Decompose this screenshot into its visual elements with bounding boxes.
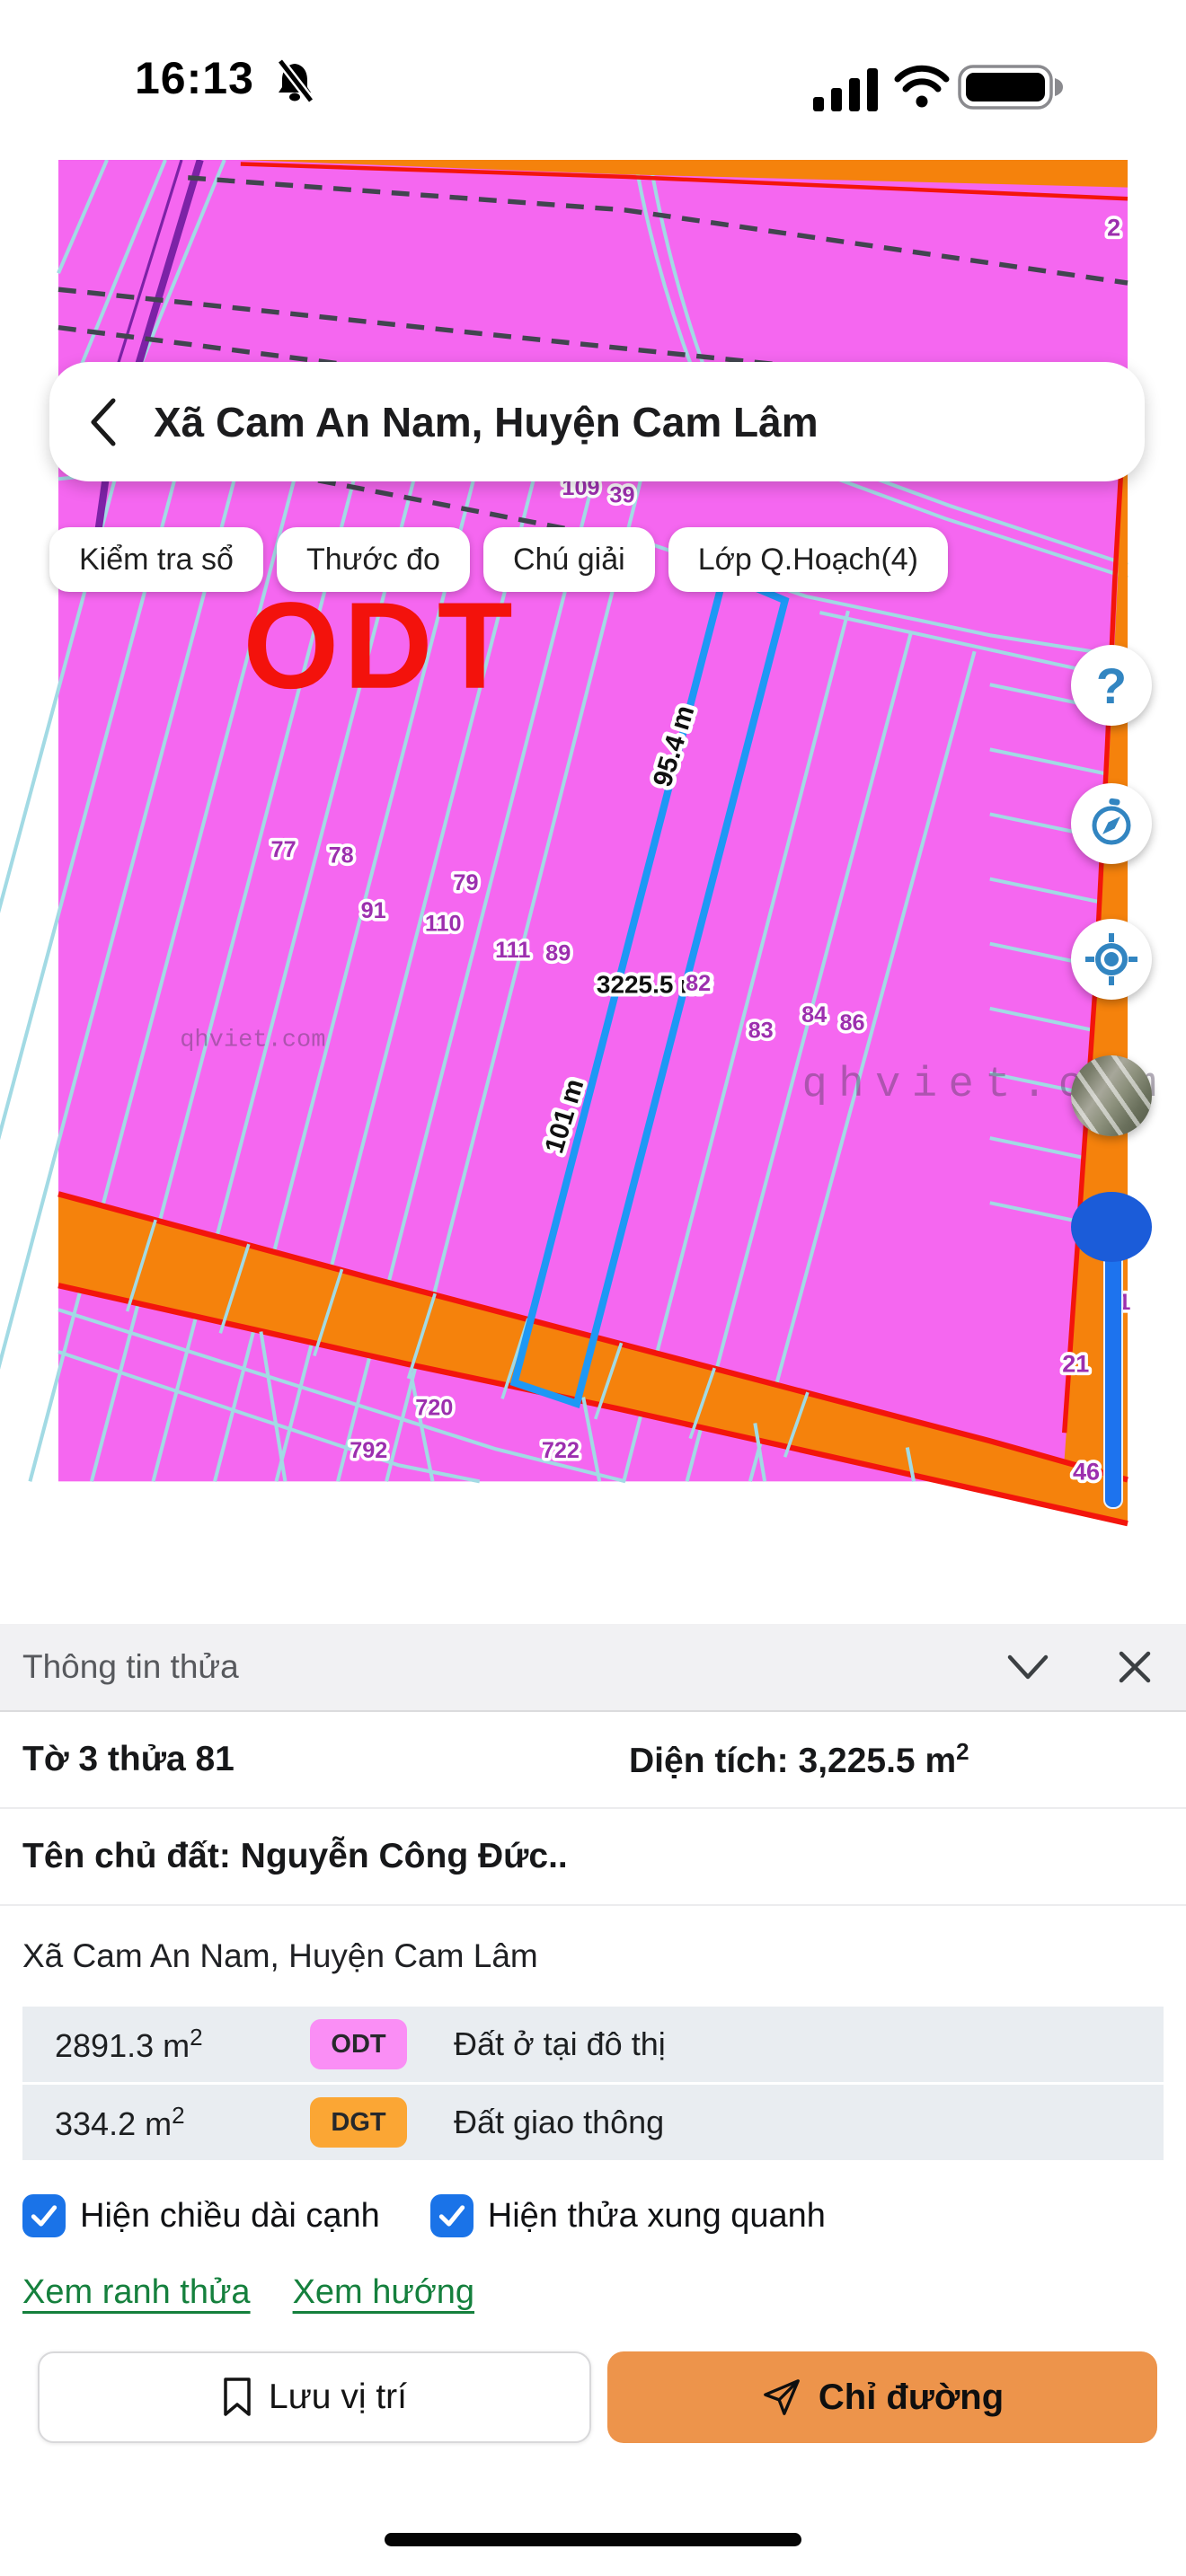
wifi-icon [893,63,951,110]
checkbox-label[interactable]: Hiện chiều dài cạnh [80,2197,380,2236]
svg-text:86: 86 [839,1010,864,1036]
land-use-area: 334.2 m2 [22,2102,310,2143]
land-use-code-badge: ODT [310,2019,407,2069]
land-use-description: Đất giao thông [454,2104,664,2141]
svg-text:720: 720 [415,1395,453,1420]
land-use-area: 2891.3 m2 [22,2024,310,2065]
svg-text:111: 111 [495,938,530,963]
mute-bell-icon [270,56,320,106]
owner-row: Tên chủ đất: Nguyễn Công Đức.. [0,1809,1186,1906]
svg-text:39: 39 [609,482,634,507]
svg-text:46: 46 [1073,1459,1100,1486]
chip-check-book[interactable]: Kiểm tra sổ [49,527,263,592]
compass-icon [1084,797,1138,851]
zoom-slider-knob[interactable] [1071,1192,1152,1262]
zoom-slider-track[interactable] [1103,1222,1123,1509]
checkbox-checked-icon[interactable] [22,2194,66,2237]
app-screen: 16:13 [0,0,1186,2576]
link-view-direction[interactable]: Xem hướng [293,2273,474,2312]
svg-text:91: 91 [361,898,386,923]
search-query[interactable]: Xã Cam An Nam, Huyện Cam Lâm [154,398,819,446]
svg-text:84: 84 [801,1002,827,1028]
checkbox-label[interactable]: Hiện thửa xung quanh [488,2197,826,2236]
status-bar: 16:13 [0,0,1186,160]
navigation-icon [761,2377,802,2418]
svg-text:qhviet.com: qhviet.com [180,1026,325,1054]
locate-icon [1084,931,1139,987]
cellular-signal-icon [813,65,881,111]
display-options: Hiện chiều dài cạnh Hiện thửa xung quanh [0,2194,1186,2237]
parcel-ref-row: Tờ 3 thửa 81 Diện tích: 3,225.5 m2 [0,1712,1186,1809]
parcel-info-sheet: Thông tin thửa Tờ 3 thửa 81 Diện tích: 3… [0,1624,1186,2576]
compass-button[interactable] [1071,783,1152,864]
land-use-table: 2891.3 m2 ODT Đất ở tại đô thị 334.2 m2 … [22,2007,1164,2160]
zone-label-odt: ODT [243,578,518,715]
search-bar[interactable]: Xã Cam An Nam, Huyện Cam Lâm [49,362,1145,481]
back-icon[interactable] [85,394,121,450]
svg-text:77: 77 [271,837,296,862]
my-location-button[interactable] [1071,919,1152,1000]
sheet-header: Thông tin thửa [0,1624,1186,1712]
home-indicator[interactable] [385,2533,801,2546]
close-icon[interactable] [1116,1648,1154,1686]
satellite-thumbnail [1071,1055,1152,1136]
collapse-chevron-icon[interactable] [1005,1652,1051,1682]
checkbox-show-neighbors[interactable]: Hiện thửa xung quanh [430,2194,826,2237]
help-button[interactable]: ? [1071,645,1152,726]
chip-planning-layers[interactable]: Lớp Q.Hoạch(4) [668,527,948,592]
svg-text:792: 792 [350,1438,387,1463]
svg-text:79: 79 [453,870,478,895]
clock: 16:13 [135,52,254,104]
svg-text:21: 21 [1062,1351,1089,1378]
checkbox-show-edge-lengths[interactable]: Hiện chiều dài cạnh [22,2194,380,2237]
bottom-actions: Lưu vị trí Chỉ đường [0,2351,1186,2443]
chip-ruler[interactable]: Thước đo [277,527,470,592]
parcel-address: Xã Cam An Nam, Huyện Cam Lâm [22,1937,538,1975]
svg-text:89: 89 [545,941,571,966]
link-view-boundary[interactable]: Xem ranh thửa [22,2273,251,2312]
land-use-row: 334.2 m2 DGT Đất giao thông [22,2085,1164,2160]
land-use-description: Đất ở tại đô thị [454,2025,666,2063]
address-row: Xã Cam An Nam, Huyện Cam Lâm [0,1906,1186,2007]
action-links: Xem ranh thửa Xem hướng [0,2273,1186,2312]
svg-text:110: 110 [425,911,462,936]
checkbox-checked-icon[interactable] [430,2194,474,2237]
parcel-area: Diện tích: 3,225.5 m2 [629,1738,969,1781]
tool-chips: Kiểm tra sổ Thước đo Chú giải Lớp Q.Hoạc… [49,527,948,592]
save-location-button[interactable]: Lưu vị trí [38,2351,591,2443]
parcel-ref: Tờ 3 thửa 81 [22,1740,235,1779]
chip-legend[interactable]: Chú giải [483,527,655,592]
map-viewport[interactable]: qhviet.com qhviet.com qhviet.com qhviet.… [0,160,1186,1624]
svg-text:2: 2 [1107,215,1120,242]
sheet-title: Thông tin thửa [22,1648,239,1686]
bookmark-icon [222,2377,252,2418]
svg-text:83: 83 [748,1018,774,1043]
land-use-code-badge: DGT [310,2097,407,2148]
directions-label: Chỉ đường [819,2378,1004,2418]
svg-text:82: 82 [686,971,711,996]
svg-text:722: 722 [542,1438,580,1463]
battery-icon [958,63,1076,113]
directions-button[interactable]: Chỉ đường [607,2351,1157,2443]
basemap-toggle-button[interactable] [1071,1055,1152,1136]
land-use-row: 2891.3 m2 ODT Đất ở tại đô thị [22,2007,1164,2082]
owner-name: Tên chủ đất: Nguyễn Công Đức.. [22,1837,568,1876]
save-location-label: Lưu vị trí [269,2378,407,2417]
svg-text:78: 78 [329,843,354,869]
question-icon: ? [1096,657,1127,715]
